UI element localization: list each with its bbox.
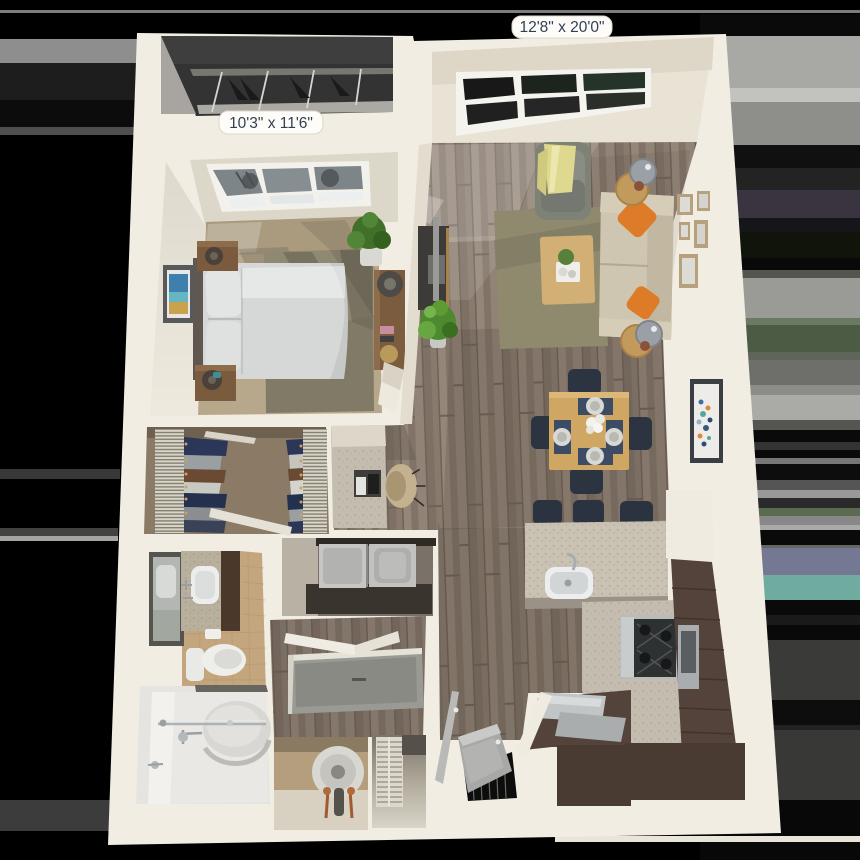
svg-text:12'8" x 20'0": 12'8" x 20'0" [519,19,604,36]
svg-text:10'3" x 11'6": 10'3" x 11'6" [229,115,313,132]
